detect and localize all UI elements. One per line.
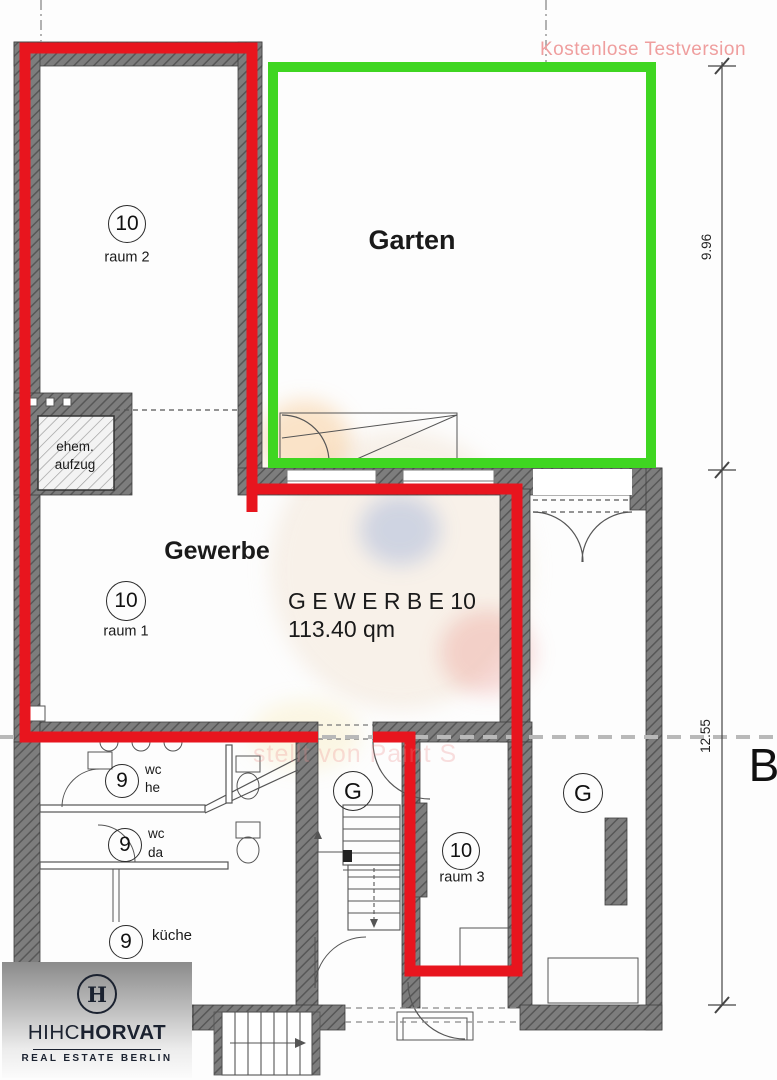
gewerbe-label: Gewerbe [164,538,270,564]
room-circle-g-left: G [333,771,373,811]
room-label-wc2: wc [148,827,165,841]
elevator-label-line1: ehem. [56,440,94,454]
room-circle-wc-he: 9 [105,764,139,798]
dimension-lower: 12.55 [699,719,713,753]
floorplan-drawing [0,0,777,1080]
trial-watermark: Kostenlose Testversion [540,40,746,60]
room-circle-wc-da: 9 [108,828,142,862]
section-letter: B [749,741,777,789]
walls [14,42,662,1030]
room-circle-raum2: 10 [108,205,146,243]
garden-outline [273,67,651,463]
logo-divider [33,1049,161,1050]
room-circle-kueche: 9 [109,925,143,959]
room-label-raum2: raum 2 [104,250,149,265]
logo-monogram: H [77,974,117,1014]
elevator-label-line2: aufzug [55,458,96,472]
software-watermark: stellt von Paint S [253,741,457,767]
room-label-raum1: raum 1 [103,624,148,639]
room-label-he: he [145,781,160,795]
room-circle-raum3: 10 [442,832,480,870]
dimension-line [708,58,736,1013]
room-label-da: da [148,846,163,860]
room-label-wc: wc [145,763,162,777]
gewerbe-unit-title: G E W E R B E 10 [288,589,476,613]
floorplan-page: Kostenlose Testversion stellt von Paint … [0,0,777,1080]
logo-subtitle: REAL ESTATE BERLIN [22,1053,173,1064]
room-circle-g-right: G [563,773,603,813]
room-label-kueche: küche [152,928,192,944]
logo-brand: HIHCHORVAT [28,1021,166,1045]
dimension-upper: 9.96 [700,234,714,260]
room-label-raum3: raum 3 [439,870,484,885]
garden-label: Garten [368,226,455,254]
gewerbe-area: 113.40 qm [288,617,395,641]
agency-logo: H HIHCHORVAT REAL ESTATE BERLIN [2,962,192,1078]
room-circle-raum1: 10 [106,581,146,621]
